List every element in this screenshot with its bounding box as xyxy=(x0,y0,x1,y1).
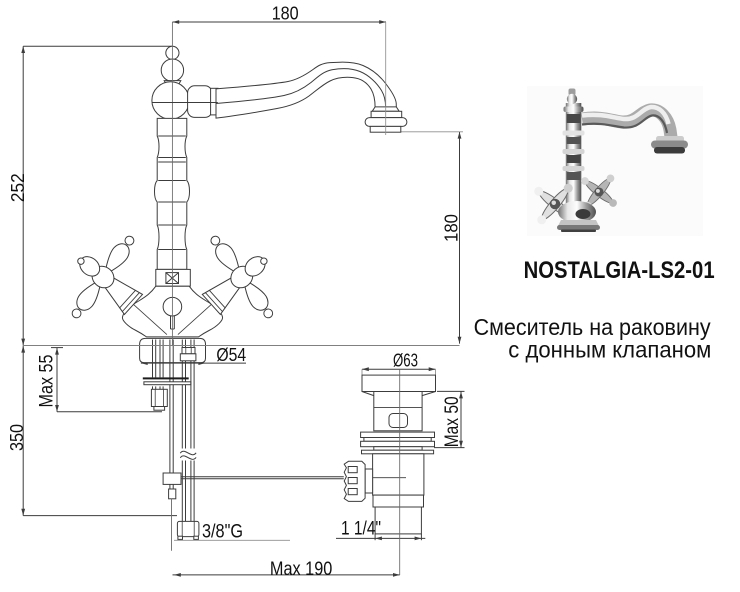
svg-text:252: 252 xyxy=(8,173,28,202)
svg-text:Max 190: Max 190 xyxy=(270,559,332,580)
svg-text:180: 180 xyxy=(442,214,462,242)
svg-text:Max 50: Max 50 xyxy=(442,396,463,447)
svg-text:Ø63: Ø63 xyxy=(393,351,418,371)
svg-text:350: 350 xyxy=(7,424,27,451)
svg-text:Max 55: Max 55 xyxy=(37,355,58,408)
svg-text:3/8"G: 3/8"G xyxy=(202,522,243,543)
svg-text:1 1/4": 1 1/4" xyxy=(341,519,381,540)
svg-text:Ø54: Ø54 xyxy=(216,345,246,365)
svg-text:с донным клапаном: с донным клапаном xyxy=(508,337,711,363)
svg-text:NOSTALGIA-LS2-01: NOSTALGIA-LS2-01 xyxy=(524,257,715,284)
svg-text:180: 180 xyxy=(272,4,299,24)
